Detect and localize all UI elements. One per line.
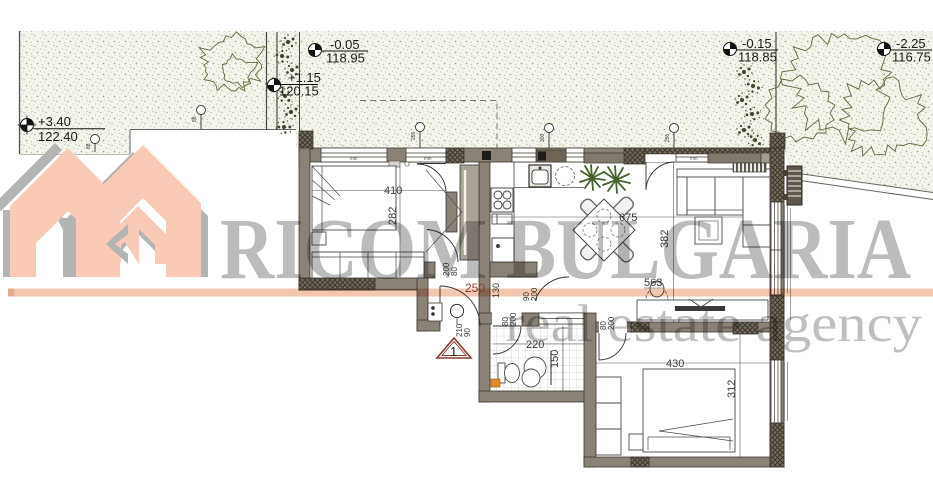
svg-text:mm: mm (690, 156, 698, 161)
svg-text:88: 88 (192, 116, 198, 122)
svg-text:118.95: 118.95 (326, 51, 365, 66)
svg-text:RICOM BULGARIA: RICOM BULGARIA (220, 200, 911, 297)
svg-text:410: 410 (384, 185, 402, 197)
svg-text:real estate agency: real estate agency (505, 295, 923, 353)
svg-text:88: 88 (86, 143, 92, 149)
svg-text:255: 255 (411, 131, 417, 140)
svg-text:1: 1 (450, 344, 457, 359)
svg-text:430: 430 (666, 358, 684, 370)
svg-text:122.40: 122.40 (38, 129, 78, 144)
svg-text:90: 90 (463, 328, 472, 337)
svg-text:118.85: 118.85 (738, 50, 777, 65)
svg-text:mm: mm (350, 156, 358, 161)
svg-text:+3.40: +3.40 (38, 114, 71, 129)
svg-text:255: 255 (665, 133, 671, 142)
svg-text:312: 312 (726, 380, 738, 398)
svg-text:mm: mm (424, 156, 432, 161)
svg-text:120.15: 120.15 (279, 84, 319, 99)
svg-text:300: 300 (540, 133, 546, 142)
svg-text:116.75: 116.75 (892, 50, 931, 65)
